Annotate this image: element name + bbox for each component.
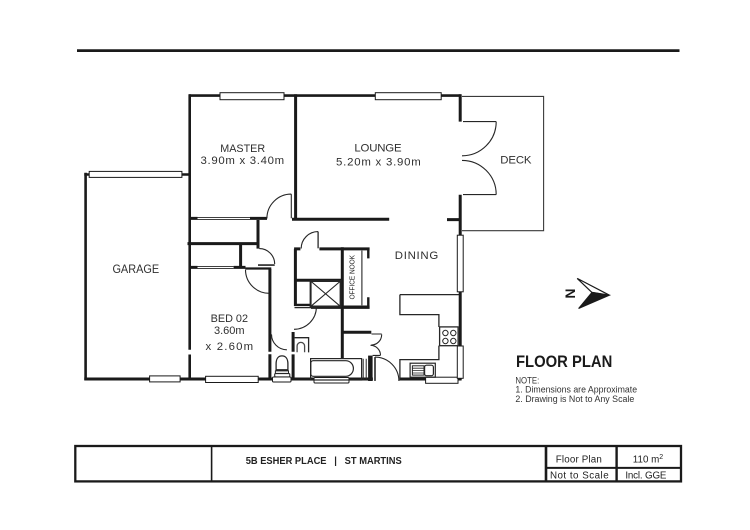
svg-text:3.90m x 3.40m: 3.90m x 3.40m: [200, 155, 284, 167]
svg-text:N: N: [563, 288, 579, 298]
svg-text:5.20m x 3.90m: 5.20m x 3.90m: [336, 156, 421, 168]
svg-text:Not to Scale: Not to Scale: [550, 471, 609, 482]
svg-text:2. Drawing is Not to Any Scale: 2. Drawing is Not to Any Scale: [515, 394, 634, 405]
svg-text:110 m2: 110 m2: [633, 454, 664, 466]
svg-text:DINING: DINING: [395, 250, 439, 262]
svg-text:MASTER: MASTER: [220, 143, 265, 155]
svg-text:Floor Plan: Floor Plan: [556, 455, 602, 466]
svg-text:DECK: DECK: [500, 154, 532, 166]
svg-text:5B ESHER PLACE | ST MARTIN: 5B ESHER PLACE | ST MARTINS: [246, 456, 402, 467]
svg-text:BED 02: BED 02: [211, 313, 248, 325]
svg-text:LOUNGE: LOUNGE: [354, 143, 402, 155]
svg-text:GARAGE: GARAGE: [112, 262, 159, 276]
svg-text:Incl. GGE: Incl. GGE: [625, 471, 667, 482]
svg-text:x 2.60m: x 2.60m: [206, 341, 254, 353]
svg-text:FLOOR PLAN: FLOOR PLAN: [516, 352, 612, 371]
svg-text:3.60m: 3.60m: [214, 325, 245, 337]
svg-text:OFFICE NOOK: OFFICE NOOK: [350, 255, 357, 300]
